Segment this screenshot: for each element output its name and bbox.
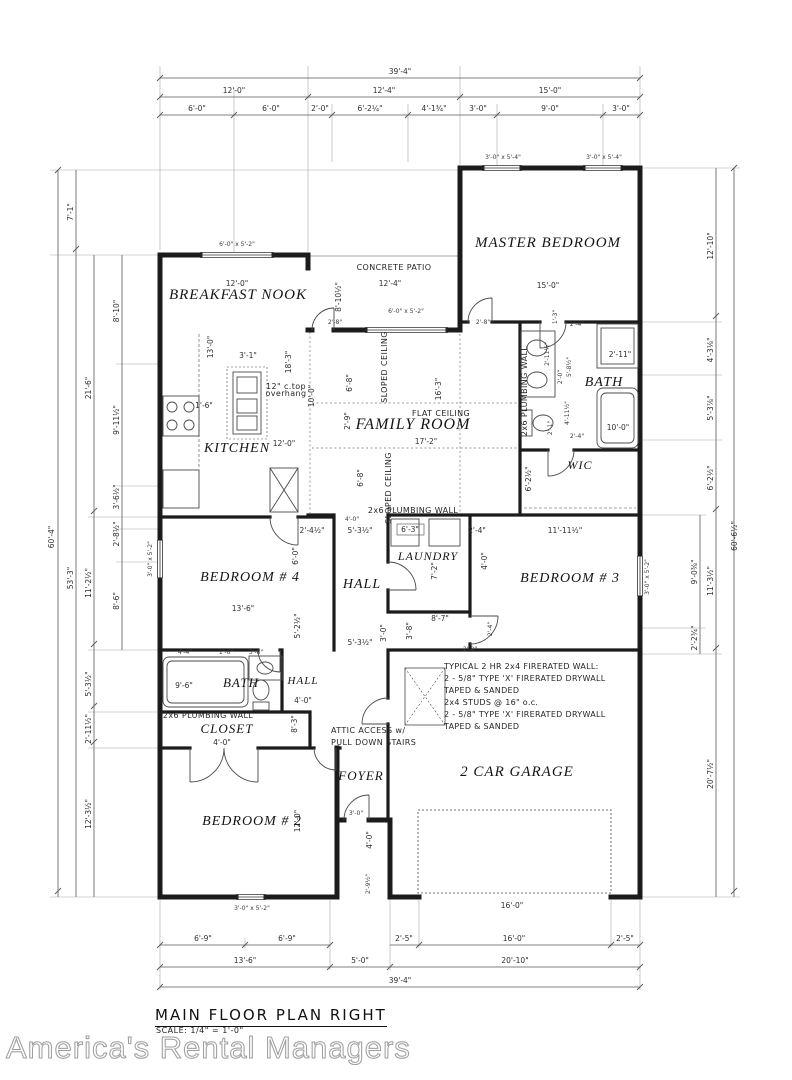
room-label: BATH [223, 675, 259, 690]
dimension-label: 6'-0" [291, 547, 300, 565]
note-line: 2 - 5/8" TYPE 'X' FIRERATED DRYWALL [444, 674, 606, 683]
dimension-label: 3'-0" x 5'-4" [586, 154, 622, 161]
dimension-label: 8'-10" [112, 300, 121, 323]
dimension-label: 2'-4" [570, 433, 584, 440]
dimension-label: 2'-8½" [112, 521, 121, 546]
dimension-label: 1'-3" [552, 310, 559, 324]
room-label: MASTER BEDROOM [474, 235, 622, 251]
dimension-label: 6'-0" x 5'-2" [388, 308, 424, 315]
dimension-label: 12'-0" [223, 86, 246, 95]
dimension-label: 6'-0" [188, 104, 206, 113]
dimension-label: 2'-0" [311, 104, 329, 113]
dimension-label: 6'-8" [345, 374, 354, 392]
dimension-label: 2'-8" [476, 319, 490, 326]
floor-plan-page: MASTER BEDROOMBREAKFAST NOOKKITCHENFAMIL… [0, 0, 792, 1080]
note-line: TAPED & SANDED [443, 722, 519, 731]
dimension-label: 8'-3" [290, 715, 299, 733]
dimension-label: 53'-3" [66, 567, 75, 590]
dimension-label: 12'-3½" [84, 799, 93, 829]
dimension-lines [55, 75, 737, 990]
dimension-label: 6'-2½" [524, 466, 533, 491]
dimension-label: 6'-9" [194, 934, 212, 943]
master-tub [597, 388, 638, 448]
dimension-label: 4'-0" [294, 696, 312, 705]
dimension-label: 15'-0" [539, 86, 562, 95]
dimension-label: 4'-0" [345, 516, 359, 523]
refrigerator [163, 470, 199, 508]
dimension-label: 6'-3" [401, 525, 419, 534]
plan-title: MAIN FLOOR PLAN RIGHT [155, 1006, 387, 1027]
dimension-label: 3'-0" [469, 104, 487, 113]
dimension-label: 9'-0" [541, 104, 559, 113]
dimension-label: 12'-0" [226, 279, 249, 288]
dimension-label: 13'-6" [234, 956, 257, 965]
room-label: WIC [568, 458, 593, 472]
dimension-label: 2'-4" [468, 526, 486, 535]
dimension-label: 2'-4½" [299, 526, 324, 535]
dimension-label: 2'-8" [463, 646, 477, 653]
dimension-label: 9'-11½" [112, 405, 121, 435]
dimension-label: 8'-10½" [334, 282, 343, 312]
note-line: TAPED & SANDED [443, 686, 519, 695]
dimension-label: 3'-0" [379, 624, 388, 642]
room-label: KITCHEN [203, 441, 270, 456]
extension-lines [50, 66, 740, 990]
annotation-label: PULL DOWN STAIRS [331, 738, 416, 747]
bedroom4-door [270, 517, 298, 545]
dimension-label: 3'-8" [249, 649, 263, 656]
room-label: BREAKFAST NOOK [169, 287, 307, 303]
dimension-label: 5'-8½" [566, 357, 573, 377]
annotation-label: ATTIC ACCESS w/ [331, 726, 405, 735]
dimension-label: 17'-2" [415, 437, 438, 446]
dimension-label: 2'-9" [343, 412, 352, 430]
note-line: 2x4 STUDS @ 16" o.c. [444, 698, 538, 707]
dimension-label: 12'-0" [273, 439, 296, 448]
kitchen-island [227, 367, 267, 439]
dimension-label: 2'-11½" [544, 342, 551, 366]
dimension-label: 13'-0" [206, 336, 215, 359]
range [163, 396, 199, 436]
dimension-label: 39'-4" [389, 67, 412, 76]
dimension-label: 3'-6½" [112, 484, 121, 509]
dimension-label: 7'-1" [66, 203, 75, 221]
annotation-label: SLOPED CEILING [380, 331, 389, 403]
watermark: America's Rental Managers [6, 1030, 411, 1066]
room-label: HALL [287, 675, 319, 687]
dimension-label: 11'-11½" [548, 526, 583, 535]
dimension-label: 3'-0" x 5'-2" [147, 541, 154, 577]
dimension-label: 12'-0" [293, 810, 302, 833]
dimension-label: 2'-5" [395, 934, 413, 943]
dimension-label: 4'-0" [213, 738, 231, 747]
garage-door-dashed [418, 810, 611, 893]
dimension-label: 21'-6" [84, 377, 93, 400]
dimension-label: 5'-3½" [347, 526, 372, 535]
dimension-label: 16'-3" [434, 378, 443, 401]
dimension-label: 6'-8" [356, 469, 365, 487]
room-label: LAUNDRY [397, 549, 458, 563]
dimension-label: 12'-4" [373, 86, 396, 95]
dimension-label: 2'-9½" [365, 874, 372, 894]
note-line: 2 - 5/8" TYPE 'X' FIRERATED DRYWALL [444, 710, 606, 719]
dimension-label: 9'-6" [175, 681, 193, 690]
dimension-label: 4'-4" [178, 649, 192, 656]
dimension-label: 2'-2¾" [690, 625, 699, 650]
dimension-label: 2'-5" [616, 934, 634, 943]
dimension-label: 6'-2¼" [357, 104, 382, 113]
dimension-label: 6'-0" [262, 104, 280, 113]
dimension-label: 16'-0" [503, 934, 526, 943]
dimension-label: 6'-9" [278, 934, 296, 943]
dimension-label: 12'-10" [706, 232, 715, 259]
dimension-label: 4'-3⅛" [706, 337, 715, 362]
dimension-label: 5'-0" [351, 956, 369, 965]
room-label: HALL [342, 577, 381, 592]
annotation-label: 2x6 PLUMBING WALL [368, 506, 458, 515]
dimension-label: 11'-3½" [706, 566, 715, 596]
floor-plan-drawing: MASTER BEDROOMBREAKFAST NOOKKITCHENFAMIL… [0, 0, 792, 1080]
dimension-label: 5'-3⅞" [706, 395, 715, 420]
dimension-label: 3'-8" [405, 622, 414, 640]
dimension-label: 3'-0" x 5'-4" [485, 154, 521, 161]
dimension-label: 5'-2½" [293, 613, 302, 638]
dimension-label: 2'-11" [609, 350, 632, 359]
annotation-label: overhang [265, 389, 306, 398]
dimension-label: 4'-0" [480, 552, 489, 570]
dimension-label: 6'-2½" [706, 465, 715, 490]
attic-access-hatch [405, 668, 445, 725]
dimension-label: 2'-11½" [84, 714, 93, 744]
garage-entry-door [362, 698, 388, 724]
note-line: TYPICAL 2 HR 2x4 FIRERATED WALL: [443, 662, 599, 671]
room-label: CLOSET [201, 721, 254, 736]
annotation-label: 2x6 PLUMBING WALL [520, 346, 529, 436]
dimension-label: 16'-0" [501, 901, 524, 910]
dimension-label: 1'-6" [219, 649, 233, 656]
room-label: FOYER [337, 768, 383, 783]
dimension-label: 2'-1" [547, 421, 554, 435]
laundry-door [388, 562, 416, 590]
dimension-label: 3'-0" [612, 104, 630, 113]
dimension-label: 60'-6½" [730, 521, 739, 551]
dimension-label: 2'-4" [487, 622, 494, 636]
dimension-label: 15'-0" [537, 281, 560, 290]
dimension-label: 4'-0" [365, 831, 374, 849]
room-label: BEDROOM # 3 [520, 571, 620, 586]
room-label: BATH [585, 375, 623, 390]
dimension-label: 4'-11½" [564, 401, 571, 425]
dimension-label: 5'-3½" [347, 638, 372, 647]
dimension-label: 3'-0" x 5'-2" [644, 559, 651, 595]
dimension-label: 9'-0⅜" [690, 559, 699, 584]
dimension-label: 4'-1¾" [421, 104, 446, 113]
dimension-label: 3'-0" x 5'-2" [234, 905, 270, 912]
dimension-label: 7'-2" [430, 562, 439, 580]
dimension-label: 20'-7½" [706, 759, 715, 789]
room-label: BEDROOM # 2 [202, 814, 302, 829]
dimension-label: 6'-0" x 5'-2" [219, 241, 255, 248]
dimension-label: 11'-2½" [84, 568, 93, 598]
plan-labels: MASTER BEDROOMBREAKFAST NOOKKITCHENFAMIL… [47, 67, 739, 985]
dimension-label: 20'-10" [501, 956, 528, 965]
dimension-label: 13'-6" [232, 604, 255, 613]
dimension-label: 3'-1" [239, 351, 257, 360]
dimension-label: 10'-0" [607, 423, 630, 432]
dimension-ticks [55, 75, 737, 990]
pantry [270, 468, 298, 512]
room-label: FAMILY ROOM [355, 416, 472, 433]
dimension-label: 2'-4" [570, 321, 584, 328]
room-label: BEDROOM # 4 [200, 570, 300, 585]
dimension-label: 18'-3" [284, 351, 293, 374]
master-shower [597, 324, 638, 368]
dimension-label: 2'-0" [557, 370, 564, 384]
room-label: 2 CAR GARAGE [460, 764, 574, 780]
dimension-label: 8'-7" [431, 614, 449, 623]
annotation-label: FLAT CEILING [412, 409, 470, 418]
dimension-label: 1'-6" [195, 401, 213, 410]
closet-double-door [190, 748, 258, 782]
dimension-label: 3'-0" [349, 810, 363, 817]
dimension-label: 10'-0" [307, 385, 316, 408]
annotation-label: CONCRETE PATIO [357, 263, 432, 272]
dimension-label: 5'-3½" [84, 671, 93, 696]
dimension-label: 2'-8" [328, 319, 342, 326]
dimension-label: 12'-4" [379, 279, 402, 288]
bedroom2-door [314, 748, 336, 770]
dimension-label: 60'-4" [47, 526, 56, 549]
dimension-label: 39'-4" [389, 976, 412, 985]
dryer [429, 519, 460, 546]
annotation-label: 2x6 PLUMBING WALL [163, 711, 253, 720]
dimension-label: 8'-6" [112, 592, 121, 610]
